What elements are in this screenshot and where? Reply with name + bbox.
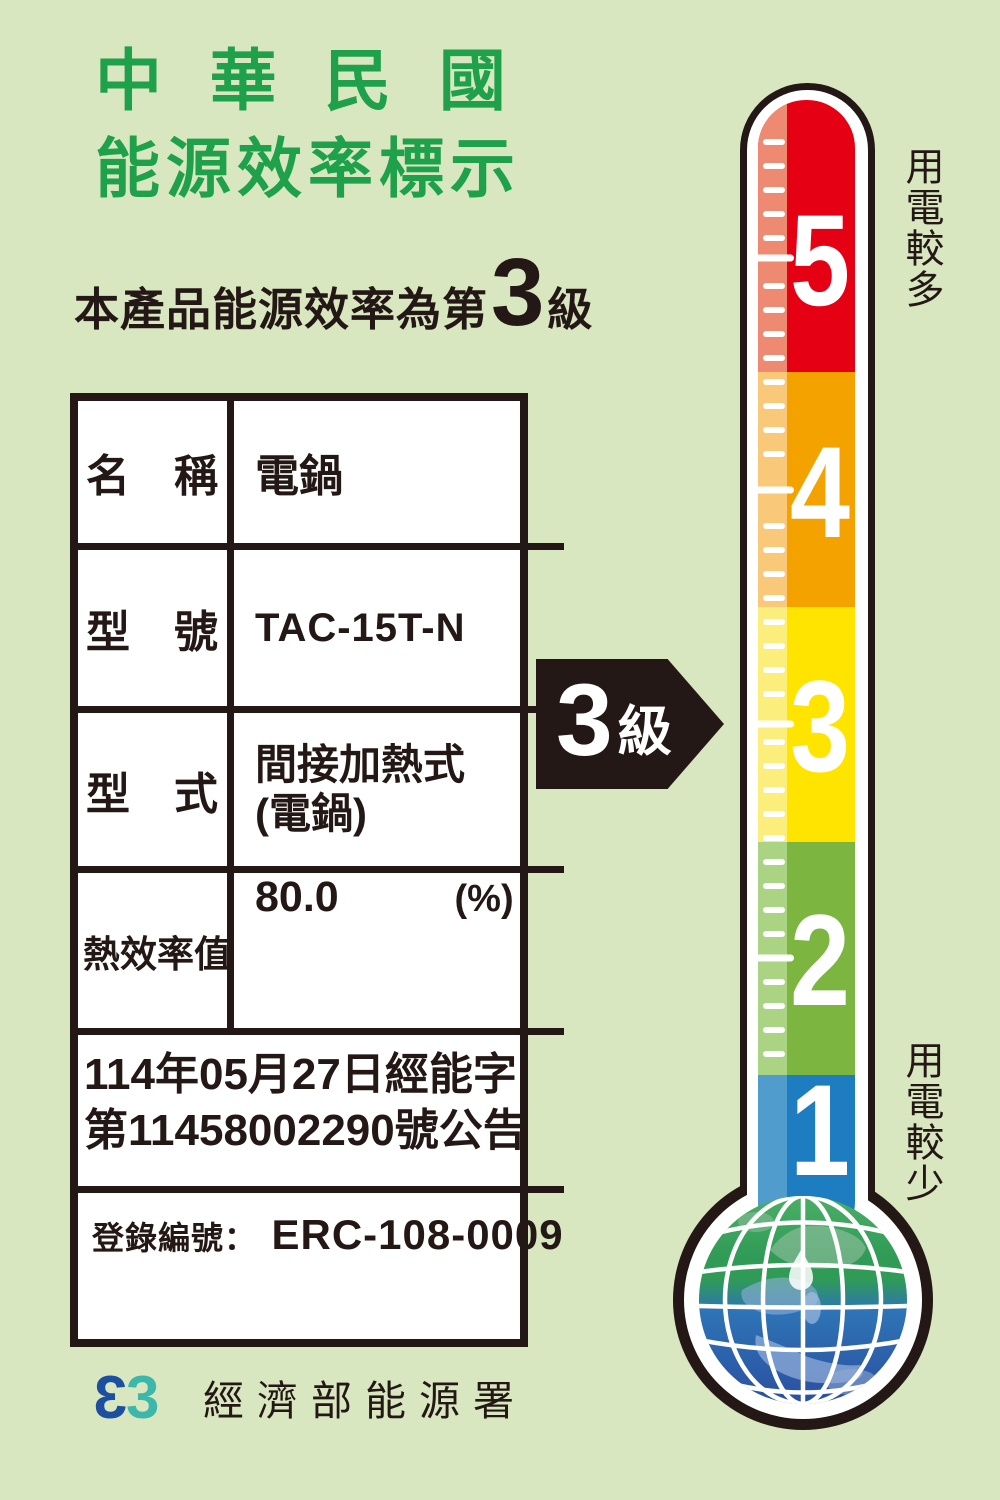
strip-5 <box>758 100 787 372</box>
segment-1 <box>758 1075 855 1250</box>
agency-name: 經濟部能源署 <box>203 1367 527 1427</box>
level-number-3: 3 <box>790 655 850 800</box>
title-line1: 中 華 民 國 <box>95 48 535 115</box>
usage-label-low: 用電較少 <box>893 1040 949 1204</box>
level-number-1: 1 <box>790 1059 850 1204</box>
label-title: 中 華 民 國 能源效率標示 <box>95 48 535 201</box>
segment-5 <box>758 100 855 372</box>
globe-land <box>738 1212 878 1395</box>
type-line2: (電鍋) <box>255 790 564 839</box>
table-row-name: 名 稱 電鍋 <box>78 401 564 550</box>
scale-ticks <box>753 139 794 1057</box>
strip-3 <box>758 607 787 842</box>
energy-administration-logo: 3 3 <box>95 1366 163 1428</box>
logo-right-glyph: 3 <box>126 1366 159 1428</box>
announcement-line1: 114年05月27日經能字 <box>84 1047 560 1103</box>
globe-grid <box>699 1196 907 1404</box>
efficiency-value: 80.0 <box>255 873 339 922</box>
row-type-value-cell: 間接加熱式 (電鍋) <box>234 713 564 866</box>
footer: 3 3 經濟部能源署 <box>95 1366 527 1428</box>
usage-label-high: 用電較多 <box>893 146 949 310</box>
strip-2 <box>758 842 787 1075</box>
grade-statement: 本產品能源效率為第 3 級 <box>74 245 593 341</box>
bulb-inner-white <box>684 1181 922 1419</box>
table-row-model: 型 號 TAC-15T-N <box>78 550 564 713</box>
level-number-2: 2 <box>790 889 850 1034</box>
level-segments <box>753 100 855 1250</box>
globe <box>699 1196 907 1404</box>
row-name-label: 名 稱 <box>78 401 234 543</box>
grade-arrow-number: 3 <box>556 659 613 781</box>
level-number-5: 5 <box>790 189 850 334</box>
type-line1: 間接加熱式 <box>255 741 564 790</box>
row-efficiency-label: 熱效率值 <box>78 873 234 1028</box>
model-number: TAC-15T-N <box>255 606 564 651</box>
segment-4 <box>758 372 855 607</box>
registration-label: 登錄編號： <box>92 1220 257 1256</box>
grade-arrow: 3 級 <box>536 659 724 789</box>
product-name: 電鍋 <box>255 440 564 504</box>
efficiency-unit: (%) <box>455 878 514 921</box>
level-number-4: 4 <box>790 421 850 566</box>
level-numbers: 5 4 3 2 1 <box>790 189 850 1204</box>
row-model-value-cell: TAC-15T-N <box>234 550 564 706</box>
row-type-label: 型 式 <box>78 713 234 866</box>
registration-row: 登錄編號： ERC-108-0009 <box>78 1193 564 1339</box>
grade-arrow-suffix: 級 <box>618 705 672 759</box>
energy-label: 中 華 民 國 能源效率標示 本產品能源效率為第 3 級 名 稱 電鍋 型 號 … <box>0 0 1000 1500</box>
table-row-efficiency: 熱效率值 80.0 (%) <box>78 873 564 1035</box>
segment-2 <box>758 842 855 1075</box>
title-line2: 能源效率標示 <box>95 136 535 201</box>
strip-1 <box>758 1075 787 1250</box>
tube-inner-white <box>747 90 868 1300</box>
row-efficiency-value-cell: 80.0 (%) <box>234 873 564 1028</box>
globe-highlight <box>789 1250 813 1290</box>
grade-statement-suffix: 級 <box>547 273 593 338</box>
segment-3 <box>758 607 855 842</box>
strip-4 <box>758 372 787 607</box>
grade-statement-number: 3 <box>491 245 544 341</box>
row-model-label: 型 號 <box>78 550 234 706</box>
row-name-value-cell: 電鍋 <box>234 401 564 543</box>
registration-number: ERC-108-0009 <box>271 1211 563 1258</box>
announcement-line2: 第11458002290號公告 <box>84 1103 560 1159</box>
logo-left-glyph: 3 <box>95 1366 127 1428</box>
table-row-type: 型 式 間接加熱式 (電鍋) <box>78 713 564 873</box>
bulb-outline <box>673 1170 933 1430</box>
product-info-table: 名 稱 電鍋 型 號 TAC-15T-N 型 式 間接加熱式 (電鍋) 熱效率值… <box>70 393 528 1347</box>
tube-outline <box>740 83 875 1300</box>
grade-statement-prefix: 本產品能源效率為第 <box>74 273 488 338</box>
announcement-row: 114年05月27日經能字 第11458002290號公告 <box>78 1035 564 1193</box>
